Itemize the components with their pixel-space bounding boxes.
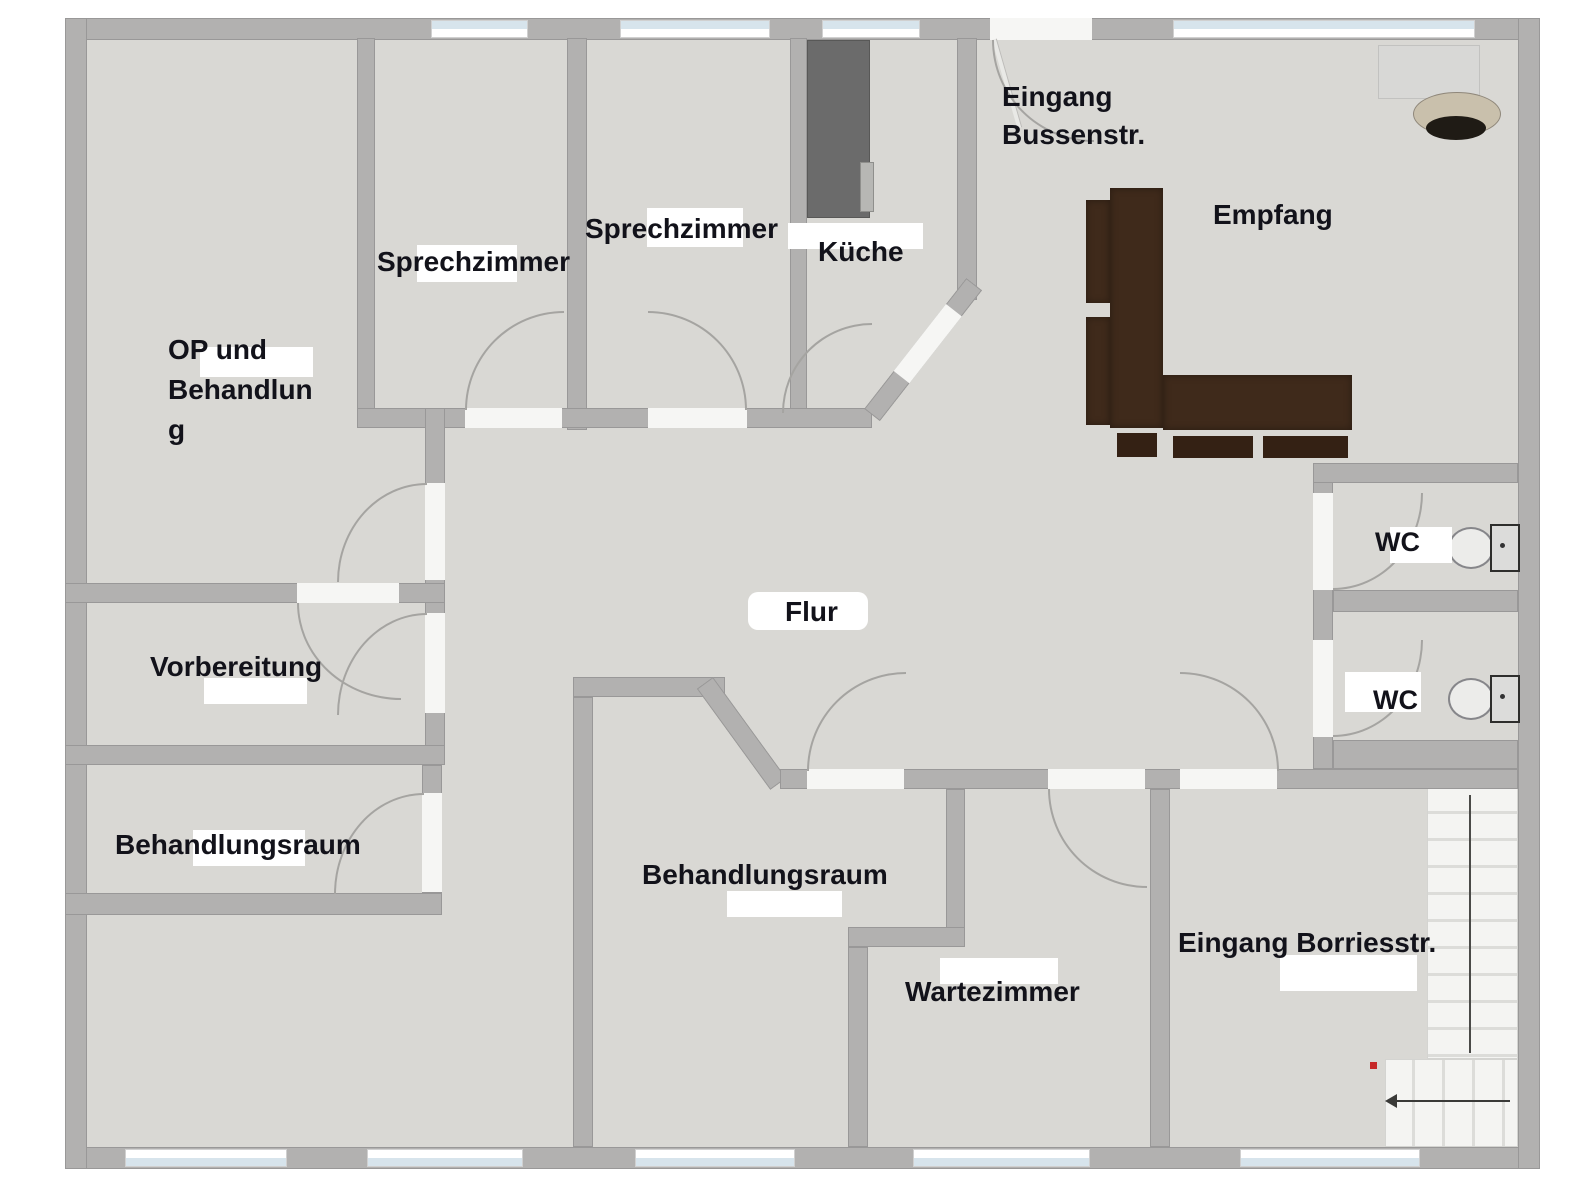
wall — [1333, 740, 1518, 769]
stair-direction-arrow — [1396, 1100, 1510, 1102]
door-opening — [1048, 769, 1145, 789]
reception-desk-segment — [1163, 375, 1352, 430]
room-label-op-line3: g — [168, 410, 313, 450]
sideboard — [1378, 45, 1480, 99]
label-backdrop — [727, 891, 842, 917]
toilet-tank-icon — [1490, 524, 1520, 572]
room-label-wc-unten: WC — [1373, 685, 1418, 715]
wall — [1518, 18, 1540, 1169]
toilet-flush-icon — [1500, 543, 1505, 548]
window — [431, 20, 528, 38]
entrance-door-opening — [990, 18, 1092, 40]
room-label-eingang-borriesstr: Eingang Borriesstr. — [1178, 928, 1436, 958]
window — [635, 1149, 795, 1167]
room-label-op-line1: OP und — [168, 330, 313, 370]
room-label-sprechzimmer-rechts: Sprechzimmer — [585, 214, 778, 244]
room-label-behandlungsraum-links: Behandlungsraum — [115, 830, 361, 860]
wall — [848, 947, 868, 1147]
label-backdrop — [1280, 955, 1417, 991]
wall — [946, 789, 965, 937]
door-opening — [297, 583, 399, 603]
room-label-kueche: Küche — [818, 237, 904, 267]
wall — [357, 38, 375, 415]
window — [913, 1149, 1090, 1167]
reception-desk-segment — [1110, 188, 1163, 428]
room-label-op-line2: Behandlun — [168, 370, 313, 410]
window — [1240, 1149, 1420, 1167]
room-label-wartezimmer: Wartezimmer — [905, 977, 1080, 1007]
toilet-icon — [1448, 678, 1494, 720]
door-opening — [1313, 640, 1333, 737]
staircase-upper-run — [1427, 787, 1518, 1059]
wall — [65, 893, 442, 915]
reception-chair — [1117, 433, 1157, 457]
room-label-wc-oben: WC — [1375, 527, 1420, 557]
window — [822, 20, 920, 38]
wall — [65, 745, 445, 765]
wall — [848, 927, 965, 947]
door-opening — [807, 769, 904, 789]
door-opening — [465, 408, 562, 428]
window — [125, 1149, 287, 1167]
wall — [1150, 789, 1170, 1147]
reception-chair — [1173, 436, 1253, 458]
room-label-behandlungsraum-mitte: Behandlungsraum — [642, 860, 888, 890]
toilet-flush-icon — [1500, 694, 1505, 699]
room-label-vorbereitung: Vorbereitung — [150, 652, 322, 682]
wall — [567, 38, 587, 430]
staircase-guide-line — [1469, 795, 1471, 1053]
room-label-flur: Flur — [785, 597, 838, 627]
room-label-op: OP und Behandlun g — [168, 330, 313, 450]
stair-start-marker — [1370, 1062, 1377, 1069]
eingang-bussenstr-line1: Eingang — [1002, 78, 1145, 116]
door-opening — [1313, 493, 1333, 590]
room-label-eingang-bussenstr: Eingang Bussenstr. — [1002, 78, 1145, 154]
office-chair-base — [1426, 116, 1486, 140]
room-label-sprechzimmer-links: Sprechzimmer — [377, 247, 570, 277]
reception-desk-segment — [1086, 200, 1110, 303]
toilet-tank-icon — [1490, 675, 1520, 723]
door-opening — [648, 408, 747, 428]
reception-chair — [1263, 436, 1348, 458]
window — [1173, 20, 1475, 38]
wall — [1313, 463, 1518, 483]
toilet-icon — [1448, 527, 1494, 569]
reception-desk-segment — [1086, 317, 1110, 425]
eingang-bussenstr-line2: Bussenstr. — [1002, 116, 1145, 154]
door-opening — [425, 483, 445, 580]
room-label-empfang: Empfang — [1213, 200, 1333, 230]
staircase-lower-run — [1385, 1059, 1518, 1147]
wall — [573, 697, 593, 1147]
kitchen-cabinet-handle — [860, 162, 874, 212]
wall — [1333, 590, 1518, 612]
door-opening — [1180, 769, 1277, 789]
stair-arrow-head-icon — [1385, 1094, 1397, 1108]
window — [367, 1149, 523, 1167]
door-opening — [425, 613, 445, 713]
window — [620, 20, 770, 38]
door-opening — [422, 793, 442, 892]
wall — [957, 38, 977, 300]
floor-plan: OP und Behandlun g Sprechzimmer Sprechzi… — [0, 0, 1594, 1193]
